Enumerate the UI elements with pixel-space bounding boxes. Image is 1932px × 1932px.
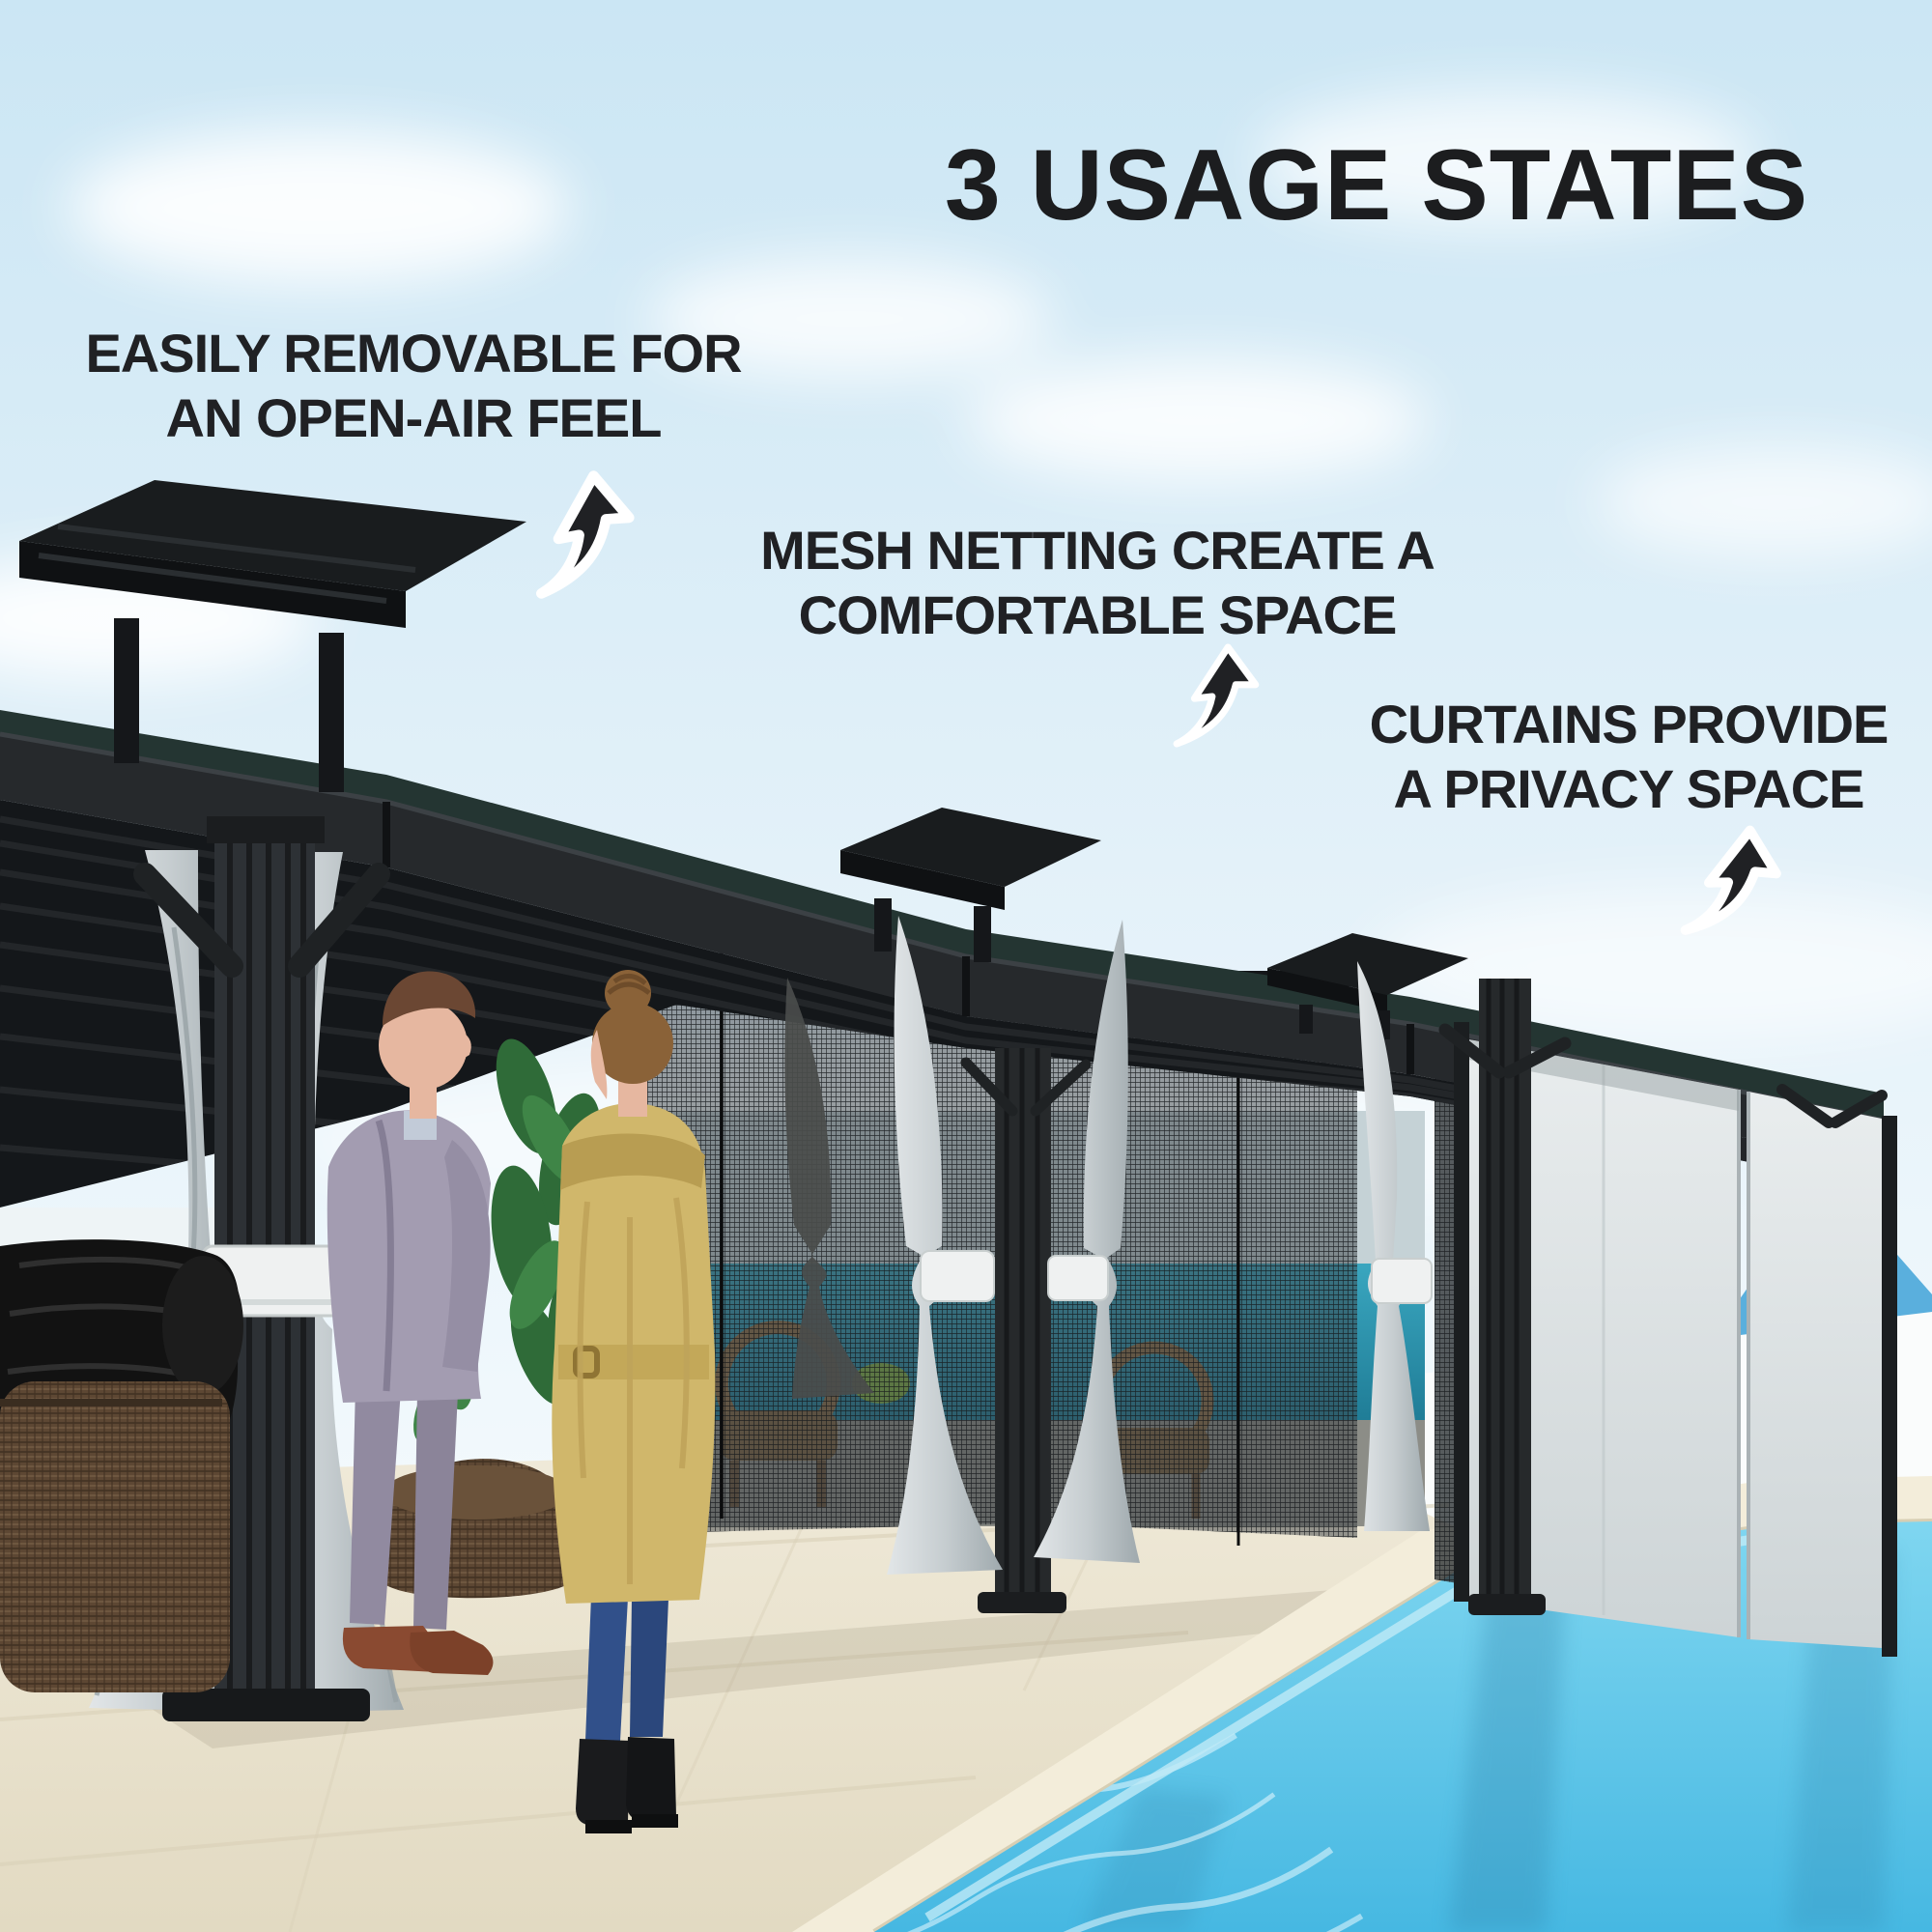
- curved-arrow-icon: [1171, 639, 1269, 752]
- caption-open-air: EASILY REMOVABLE FOR AN OPEN-AIR FEEL: [56, 321, 771, 450]
- wicker-ottoman: [384, 1459, 569, 1598]
- caption-mesh-netting-line1: MESH NETTING CREATE A: [740, 518, 1455, 582]
- page-title: 3 USAGE STATES: [894, 135, 1860, 236]
- curved-arrow-icon: [526, 466, 652, 601]
- marketing-image: 3 USAGE STATES EASILY REMOVABLE FOR AN O…: [0, 0, 1932, 1932]
- caption-privacy-line2: A PRIVACY SPACE: [1320, 756, 1932, 821]
- caption-open-air-line2: AN OPEN-AIR FEEL: [56, 385, 771, 450]
- caption-open-air-line1: EASILY REMOVABLE FOR: [56, 321, 771, 385]
- caption-privacy-line1: CURTAINS PROVIDE: [1320, 692, 1932, 756]
- rattan-sofa: [0, 1239, 243, 1692]
- caption-mesh-netting: MESH NETTING CREATE A COMFORTABLE SPACE: [740, 518, 1455, 647]
- caption-mesh-netting-line2: COMFORTABLE SPACE: [740, 582, 1455, 647]
- caption-privacy: CURTAINS PROVIDE A PRIVACY SPACE: [1320, 692, 1932, 821]
- curved-arrow-icon: [1678, 818, 1796, 945]
- scene-illustration: [0, 0, 1932, 1932]
